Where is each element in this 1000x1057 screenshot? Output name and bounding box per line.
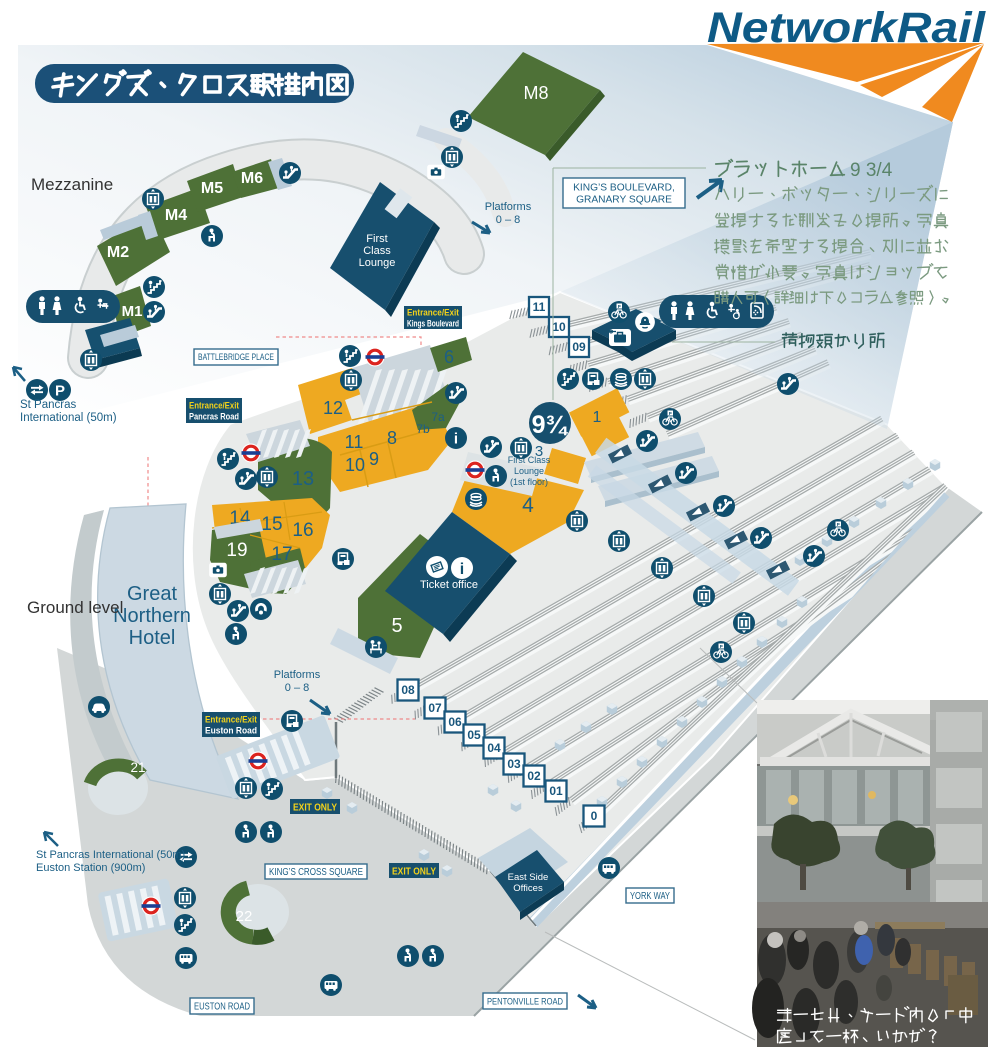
svg-text:M8: M8 (523, 83, 548, 103)
svg-text:0 – 8: 0 – 8 (285, 682, 309, 694)
svg-text:PENTONVILLE ROAD: PENTONVILLE ROAD (487, 996, 563, 1007)
svg-text:17: 17 (271, 544, 292, 565)
svg-text:EXIT ONLY: EXIT ONLY (293, 803, 337, 814)
svg-text:EUSTON ROAD: EUSTON ROAD (194, 1002, 250, 1013)
svg-text:21: 21 (130, 760, 145, 775)
svg-text:04: 04 (487, 741, 501, 755)
svg-text:Hotel: Hotel (129, 627, 176, 649)
svg-text:8: 8 (387, 428, 397, 448)
svg-text:M4: M4 (165, 207, 187, 224)
svg-text:Class: Class (363, 245, 391, 257)
svg-text:15: 15 (261, 514, 282, 535)
svg-text:6: 6 (444, 347, 454, 367)
svg-text:06: 06 (448, 715, 462, 729)
svg-text:19: 19 (226, 540, 247, 561)
svg-text:16: 16 (292, 520, 313, 541)
svg-text:GRANARY SQUARE: GRANARY SQUARE (576, 195, 672, 206)
svg-text:M6: M6 (241, 170, 263, 187)
svg-text:Offices: Offices (513, 883, 543, 894)
svg-text:Kings Boulevard: Kings Boulevard (407, 319, 459, 329)
svg-text:03: 03 (507, 757, 521, 771)
svg-text:09: 09 (572, 340, 586, 354)
svg-text:KING’S BOULEVARD,: KING’S BOULEVARD, (573, 183, 675, 194)
svg-text:7b: 7b (416, 422, 430, 436)
svg-text:Platforms: Platforms (274, 669, 321, 681)
svg-text:Euston Station (900m): Euston Station (900m) (36, 862, 145, 874)
svg-text:05: 05 (467, 728, 481, 742)
svg-text:Ticket office: Ticket office (420, 579, 478, 591)
svg-text:(1st floor): (1st floor) (510, 477, 548, 487)
svg-text:First: First (366, 233, 387, 245)
svg-text:M2: M2 (107, 244, 129, 261)
svg-text:International (50m): International (50m) (20, 412, 117, 424)
svg-text:01: 01 (549, 784, 563, 798)
svg-text:M1: M1 (122, 303, 143, 320)
svg-text:Platforms: Platforms (485, 201, 532, 213)
svg-text:BATTLEBRIDGE PLACE: BATTLEBRIDGE PLACE (198, 352, 274, 362)
svg-text:Ground level: Ground level (27, 598, 123, 617)
svg-text:12: 12 (323, 398, 343, 418)
svg-text:1: 1 (593, 409, 602, 426)
svg-text:NetworkRail: NetworkRail (707, 4, 986, 52)
svg-text:East Side: East Side (508, 872, 549, 883)
svg-text:07: 07 (428, 701, 442, 715)
svg-text:4: 4 (522, 494, 534, 517)
svg-text:11: 11 (345, 432, 364, 452)
svg-text:7a: 7a (431, 410, 445, 424)
svg-text:St Pancras: St Pancras (20, 399, 76, 411)
svg-text:5: 5 (391, 615, 402, 637)
svg-text:EXIT ONLY: EXIT ONLY (392, 867, 436, 878)
svg-text:9 3/4: 9 3/4 (850, 160, 893, 181)
svg-text:13: 13 (292, 468, 314, 490)
svg-text:Lounge: Lounge (359, 257, 396, 269)
svg-text:Pancras Road: Pancras Road (189, 412, 239, 422)
svg-text:Mezzanine: Mezzanine (31, 175, 113, 194)
svg-text:22: 22 (236, 908, 253, 925)
svg-text:Northern: Northern (113, 605, 191, 627)
svg-text:10: 10 (552, 320, 566, 334)
svg-text:KING’S CROSS SQUARE: KING’S CROSS SQUARE (269, 867, 363, 878)
svg-text:02: 02 (527, 769, 541, 783)
svg-text:St Pancras International (50m): St Pancras International (50m) (36, 849, 185, 861)
svg-text:Great: Great (127, 583, 177, 605)
svg-text:Entrance/Exit: Entrance/Exit (407, 308, 460, 319)
svg-text:9: 9 (369, 449, 379, 469)
svg-text:08: 08 (401, 683, 415, 697)
svg-text:Euston Road: Euston Road (205, 726, 257, 736)
svg-text:9¾: 9¾ (532, 411, 569, 439)
svg-text:Entrance/Exit: Entrance/Exit (189, 401, 240, 412)
svg-text:Lounge: Lounge (514, 466, 544, 476)
svg-text:Entrance/Exit: Entrance/Exit (205, 715, 258, 726)
svg-text:YORK WAY: YORK WAY (630, 891, 670, 902)
svg-text:0: 0 (591, 809, 598, 823)
svg-text:10: 10 (345, 455, 365, 475)
svg-text:0 – 8: 0 – 8 (496, 214, 520, 226)
svg-text:11: 11 (533, 300, 546, 314)
svg-text:M5: M5 (201, 180, 223, 197)
